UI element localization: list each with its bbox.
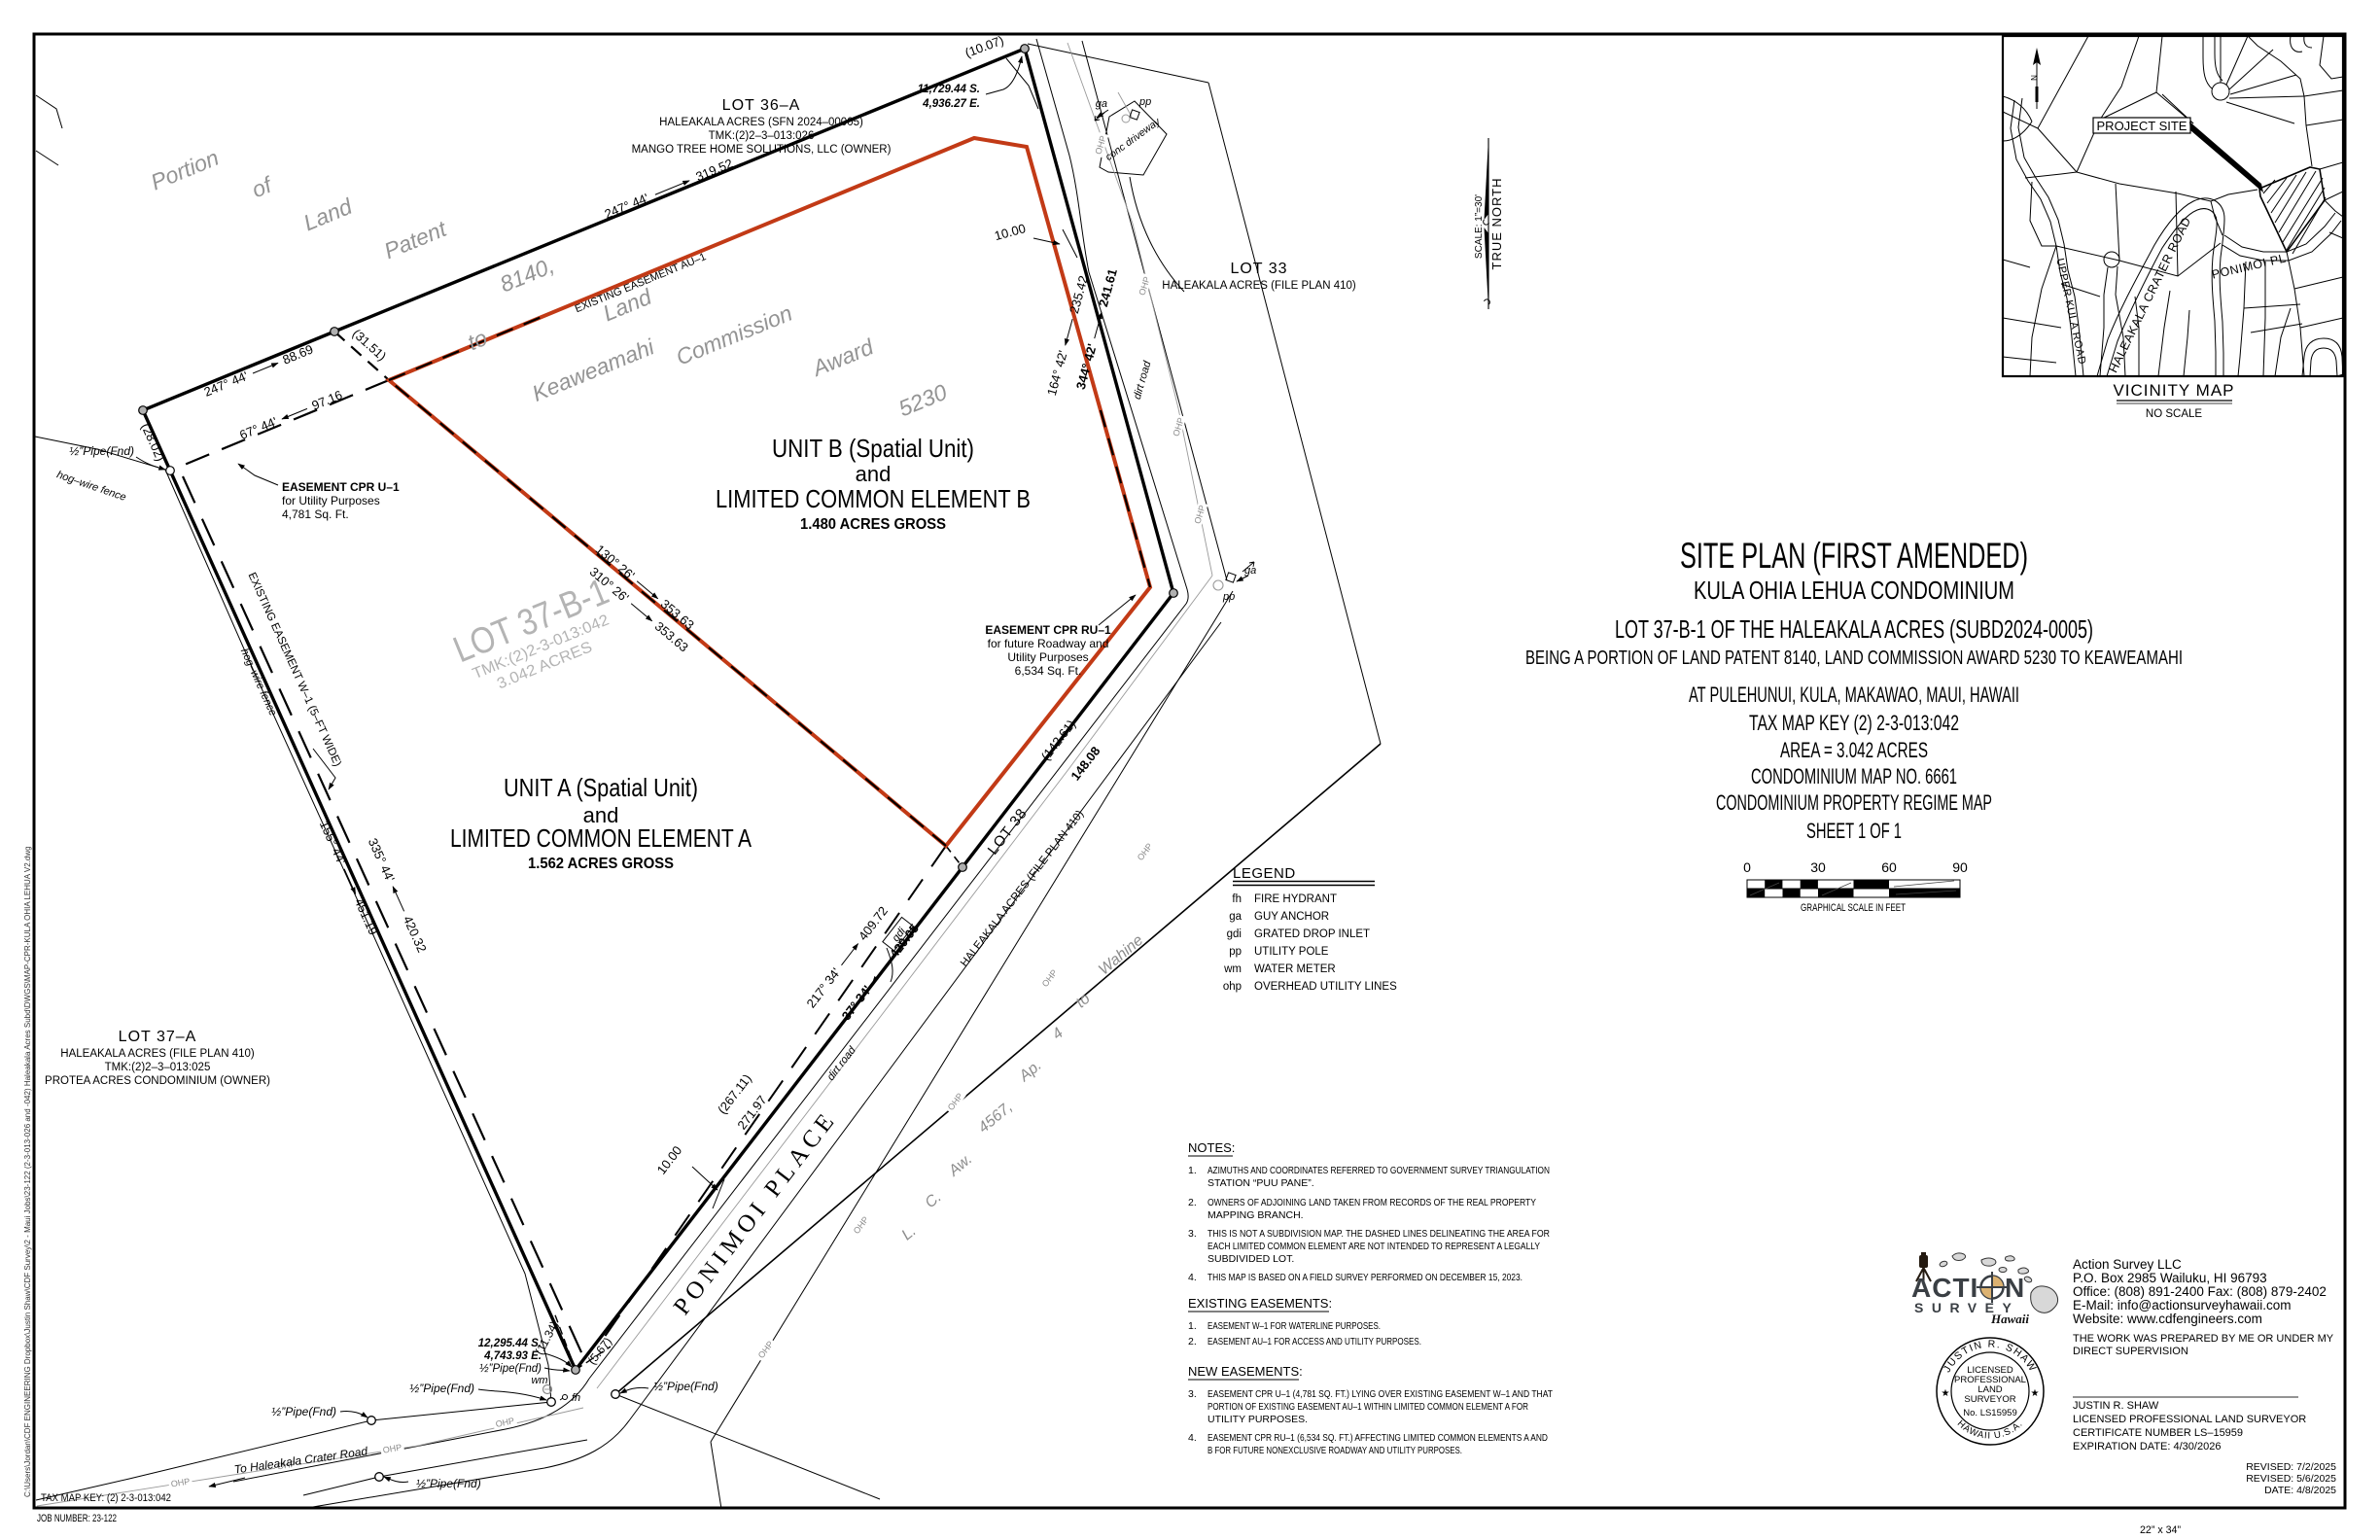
- svg-text:CERTIFICATE NUMBER LS–15959: CERTIFICATE NUMBER LS–15959: [2073, 1427, 2243, 1439]
- svg-text:DIRECT SUPERVISION: DIRECT SUPERVISION: [2073, 1346, 2188, 1357]
- svg-text:AZIMUTHS AND COORDINATES RE: AZIMUTHS AND COORDINATES REFERRED TO GOV…: [1207, 1165, 1550, 1176]
- svg-text:JOB NUMBER: 23-122: JOB NUMBER: 23-122: [37, 1513, 117, 1524]
- svg-text:0: 0: [1743, 859, 1751, 875]
- svg-text:1.: 1.: [1188, 1320, 1197, 1332]
- svg-text:EXPIRATION DATE: 4/30/2026: EXPIRATION DATE: 4/30/2026: [2073, 1441, 2221, 1452]
- svg-text:THIS MAP IS BASED ON A F: THIS MAP IS BASED ON A FIELD SURVEY PERF…: [1207, 1272, 1522, 1283]
- svg-text:4,936.27 E.: 4,936.27 E.: [922, 98, 980, 110]
- svg-text:B FOR FUTURE NONEXCLUSIVE: B FOR FUTURE NONEXCLUSIVE ROADWAY AND UT…: [1207, 1445, 1462, 1456]
- svg-text:UNIT B (Spatial Unit): UNIT B (Spatial Unit): [772, 434, 974, 463]
- svg-text:½”Pipe(Fnd): ½”Pipe(Fnd): [69, 444, 134, 458]
- svg-text:for Utility Purposes: for Utility Purposes: [282, 494, 380, 507]
- svg-text:1.480 ACRES GROSS: 1.480 ACRES GROSS: [800, 516, 946, 533]
- svg-text:OWNERS OF ADJOINING LAND T: OWNERS OF ADJOINING LAND TAKEN FROM RECO…: [1207, 1197, 1536, 1208]
- svg-text:Hawaii: Hawaii: [1990, 1312, 2029, 1326]
- svg-text:SITE PLAN (FIRST AMENDED): SITE PLAN (FIRST AMENDED): [1680, 536, 2028, 576]
- svg-text:GRATED DROP INLET: GRATED DROP INLET: [1254, 928, 1370, 940]
- svg-text:4,781 Sq. Ft.: 4,781 Sq. Ft.: [282, 507, 349, 521]
- svg-text:UNIT A (Spatial Unit): UNIT A (Spatial Unit): [504, 773, 698, 802]
- svg-text:½”Pipe(Fnd): ½”Pipe(Fnd): [271, 1405, 336, 1418]
- svg-text:TRUE NORTH: TRUE NORTH: [1489, 178, 1504, 270]
- svg-text:BEING A PORTION OF LAND PATENT: BEING A PORTION OF LAND PATENT 8140, LAN…: [1525, 647, 2183, 669]
- svg-text:AREA = 3.042 ACRES: AREA = 3.042 ACRES: [1780, 738, 1928, 762]
- svg-text:ga: ga: [1096, 98, 1107, 110]
- svg-text:LICENSED PROFESSIONAL LAND: LICENSED PROFESSIONAL LAND SURVEYOR: [2073, 1414, 2306, 1425]
- svg-text:No. LS15959: No. LS15959: [1963, 1408, 2016, 1418]
- svg-text:wm: wm: [531, 1375, 547, 1386]
- svg-text:GRAPHICAL SCALE IN FEET: GRAPHICAL SCALE IN FEET: [1801, 902, 1906, 914]
- svg-text:LOT 37–A: LOT 37–A: [119, 1029, 197, 1045]
- svg-text:1.562 ACRES GROSS: 1.562 ACRES GROSS: [528, 856, 674, 872]
- svg-text:ACTI: ACTI: [1911, 1273, 1978, 1303]
- svg-text:PROJECT SITE: PROJECT SITE: [2097, 119, 2187, 133]
- svg-text:NEW EASEMENTS:: NEW EASEMENTS:: [1188, 1364, 1303, 1379]
- svg-text:3.: 3.: [1188, 1388, 1197, 1400]
- svg-text:TAX MAP KEY (2) 2-3-013:042: TAX MAP KEY (2) 2-3-013:042: [1749, 711, 1959, 735]
- svg-text:½”Pipe(Fnd): ½”Pipe(Fnd): [479, 1363, 542, 1375]
- svg-text:1.: 1.: [1188, 1165, 1197, 1176]
- svg-text:UTILITY POLE: UTILITY POLE: [1254, 946, 1329, 958]
- svg-text:CONDOMINIUM PROPERTY REGIME MA: CONDOMINIUM PROPERTY REGIME MAP: [1716, 790, 1992, 815]
- svg-text:6,534 Sq. Ft.: 6,534 Sq. Ft.: [1015, 664, 1082, 678]
- svg-text:ohp: ohp: [1223, 981, 1242, 993]
- svg-text:AT PULEHUNUI, KULA, MAKAWAO, M: AT PULEHUNUI, KULA, MAKAWAO, MAUI, HAWAI…: [1689, 682, 2019, 707]
- svg-text:TMK:(2)2–3–013:026: TMK:(2)2–3–013:026: [709, 130, 815, 142]
- svg-text:C:\Users\Jordan\CDF ENGINEERIN: C:\Users\Jordan\CDF ENGINEERING Dropbox\…: [23, 846, 32, 1497]
- svg-text:VICINITY MAP: VICINITY MAP: [2113, 381, 2234, 400]
- svg-text:EASEMENT CPR RU–1: EASEMENT CPR RU–1: [985, 623, 1111, 637]
- svg-text:PROTEA ACRES CONDOMINIUM (O: PROTEA ACRES CONDOMINIUM (OWNER): [45, 1075, 270, 1087]
- svg-text:LOT 33: LOT 33: [1230, 261, 1287, 277]
- svg-text:GUY ANCHOR: GUY ANCHOR: [1254, 911, 1329, 923]
- svg-text:EASEMENT W–1 FOR WATERLINE: EASEMENT W–1 FOR WATERLINE PURPOSES.: [1207, 1320, 1381, 1332]
- svg-text:SHEET 1 OF 1: SHEET 1 OF 1: [1806, 819, 1902, 843]
- svg-text:fh: fh: [1232, 893, 1242, 905]
- svg-text:4.: 4.: [1188, 1432, 1197, 1444]
- svg-text:HALEAKALA ACRES (SFN 2024–0: HALEAKALA ACRES (SFN 2024–00005): [659, 117, 863, 128]
- svg-text:22” x 34”: 22” x 34”: [2140, 1524, 2181, 1536]
- svg-text:N: N: [2005, 1273, 2024, 1303]
- svg-text:EASEMENT CPR RU–1 (6,534 S: EASEMENT CPR RU–1 (6,534 SQ. FT.) AFFECT…: [1207, 1432, 1548, 1444]
- svg-text:LOT 36–A: LOT 36–A: [722, 97, 801, 114]
- svg-text:TAX MAP KEY: (2) 2-3-013:0: TAX MAP KEY: (2) 2-3-013:042: [41, 1492, 171, 1504]
- svg-text:DATE: 4/8/2025: DATE: 4/8/2025: [2264, 1485, 2336, 1496]
- svg-text:NOTES:: NOTES:: [1188, 1140, 1235, 1155]
- svg-text:REVISED: 7/2/2025: REVISED: 7/2/2025: [2246, 1461, 2336, 1473]
- svg-text:TMK:(2)2–3–013:025: TMK:(2)2–3–013:025: [105, 1062, 211, 1073]
- svg-text:4.: 4.: [1188, 1272, 1197, 1283]
- svg-text:SCALE: 1”=30': SCALE: 1”=30': [1474, 194, 1485, 259]
- svg-text:½”Pipe(Fnd): ½”Pipe(Fnd): [653, 1380, 718, 1393]
- svg-text:★: ★: [2031, 1388, 2040, 1399]
- svg-text:CONDOMINIUM MAP NO. 6661: CONDOMINIUM MAP NO. 6661: [1751, 764, 1957, 788]
- svg-text:SUBDIVIDED LOT.: SUBDIVIDED LOT.: [1207, 1253, 1294, 1265]
- svg-text:N: N: [2030, 75, 2039, 81]
- svg-text:and: and: [856, 462, 892, 486]
- svg-text:SURVEYOR: SURVEYOR: [1964, 1394, 2015, 1405]
- svg-text:LEGEND: LEGEND: [1233, 865, 1296, 882]
- svg-text:★: ★: [1942, 1388, 1950, 1399]
- svg-text:MANGO TREE HOME SOLUTIONS,: MANGO TREE HOME SOLUTIONS, LLC (OWNER): [632, 144, 892, 156]
- svg-text:WATER METER: WATER METER: [1254, 963, 1336, 975]
- svg-text:Action Survey LLC: Action Survey LLC: [2073, 1257, 2182, 1272]
- svg-text:EXISTING EASEMENTS:: EXISTING EASEMENTS:: [1188, 1296, 1332, 1311]
- svg-text:JUSTIN R. SHAW: JUSTIN R. SHAW: [2073, 1400, 2159, 1412]
- svg-text:pp: pp: [1229, 946, 1242, 958]
- svg-text:60: 60: [1881, 859, 1897, 875]
- svg-text:FIRE HYDRANT: FIRE HYDRANT: [1254, 893, 1337, 905]
- svg-text:HALEAKALA ACRES (FILE PLAN: HALEAKALA ACRES (FILE PLAN 410): [60, 1048, 255, 1060]
- svg-text:½”Pipe(Fnd): ½”Pipe(Fnd): [416, 1477, 481, 1490]
- svg-text:3.: 3.: [1188, 1228, 1197, 1240]
- svg-text:LIMITED COMMON ELEMENT A: LIMITED COMMON ELEMENT A: [450, 823, 752, 853]
- svg-text:PORTION OF EXISTING EASEMEN: PORTION OF EXISTING EASEMENT AU–1 WITHIN…: [1207, 1401, 1528, 1413]
- svg-text:pp: pp: [1138, 96, 1151, 108]
- svg-text:Website: www.cdfengineers.com: Website: www.cdfengineers.com: [2073, 1312, 2262, 1326]
- svg-text:for future Roadway and: for future Roadway and: [988, 637, 1109, 650]
- svg-text:EASEMENT AU–1 FOR ACCESS A: EASEMENT AU–1 FOR ACCESS AND UTILITY PUR…: [1207, 1336, 1421, 1347]
- svg-text:THIS IS NOT A SUBDIVISION: THIS IS NOT A SUBDIVISION MAP. THE DASHE…: [1207, 1228, 1550, 1240]
- svg-text:STATION “PUU PANE”.: STATION “PUU PANE”.: [1207, 1177, 1314, 1189]
- svg-text:pp: pp: [1222, 591, 1235, 603]
- svg-text:MAPPING BRANCH.: MAPPING BRANCH.: [1207, 1209, 1304, 1221]
- svg-text:HALEAKALA ACRES (FILE PLAN: HALEAKALA ACRES (FILE PLAN 410): [1162, 280, 1356, 292]
- svg-text:E-Mail: info@actionsurveyhawai: E-Mail: info@actionsurveyhawaii.com: [2073, 1298, 2292, 1312]
- svg-text:EACH LIMITED COMMON ELEMENT: EACH LIMITED COMMON ELEMENT ARE NOT INTE…: [1207, 1241, 1540, 1252]
- svg-text:½”Pipe(Fnd): ½”Pipe(Fnd): [409, 1382, 474, 1395]
- svg-text:30: 30: [1810, 859, 1826, 875]
- svg-text:EASEMENT CPR U–1 (4,781 SQ: EASEMENT CPR U–1 (4,781 SQ. FT.) LYING O…: [1207, 1388, 1553, 1400]
- svg-text:KULA OHIA LEHUA CONDOMINIUM: KULA OHIA LEHUA CONDOMINIUM: [1694, 576, 2014, 605]
- svg-text:90: 90: [1952, 859, 1968, 875]
- svg-text:NO SCALE: NO SCALE: [2146, 408, 2202, 420]
- svg-text:4,743.93 E.: 4,743.93 E.: [483, 1350, 542, 1362]
- svg-text:OVERHEAD UTILITY LINES: OVERHEAD UTILITY LINES: [1254, 981, 1397, 993]
- svg-text:wm: wm: [1223, 963, 1242, 975]
- svg-text:12,295.44 S.: 12,295.44 S.: [478, 1338, 542, 1349]
- svg-text:ga: ga: [1229, 911, 1242, 923]
- svg-text:Office: (808) 891-2400 Fax: (: Office: (808) 891-2400 Fax: (808) 879-24…: [2073, 1284, 2327, 1299]
- svg-text:THE WORK WAS PREPARED BY: THE WORK WAS PREPARED BY ME OR UNDER MY: [2073, 1333, 2334, 1345]
- svg-text:REVISED: 5/6/2025: REVISED: 5/6/2025: [2246, 1473, 2336, 1485]
- svg-text:fh: fh: [572, 1392, 580, 1404]
- svg-text:LIMITED COMMON ELEMENT B: LIMITED COMMON ELEMENT B: [716, 484, 1031, 513]
- svg-text:2.: 2.: [1188, 1336, 1197, 1347]
- svg-text:Utility Purposes: Utility Purposes: [1007, 650, 1088, 664]
- svg-text:EASEMENT CPR U–1: EASEMENT CPR U–1: [282, 480, 400, 494]
- svg-text:2.: 2.: [1188, 1197, 1197, 1208]
- svg-text:P.O. Box 2985 Wailuku, HI 9679: P.O. Box 2985 Wailuku, HI 96793: [2073, 1271, 2267, 1285]
- svg-text:11,729.44 S.: 11,729.44 S.: [918, 84, 980, 95]
- svg-text:UTILITY PURPOSES.: UTILITY PURPOSES.: [1207, 1414, 1308, 1425]
- svg-text:LOT 37-B-1 OF THE HALEAKALA AC: LOT 37-B-1 OF THE HALEAKALA ACRES (SUBD2…: [1615, 614, 2093, 644]
- svg-text:gdi: gdi: [1227, 928, 1242, 940]
- svg-text:ga: ga: [1244, 565, 1256, 577]
